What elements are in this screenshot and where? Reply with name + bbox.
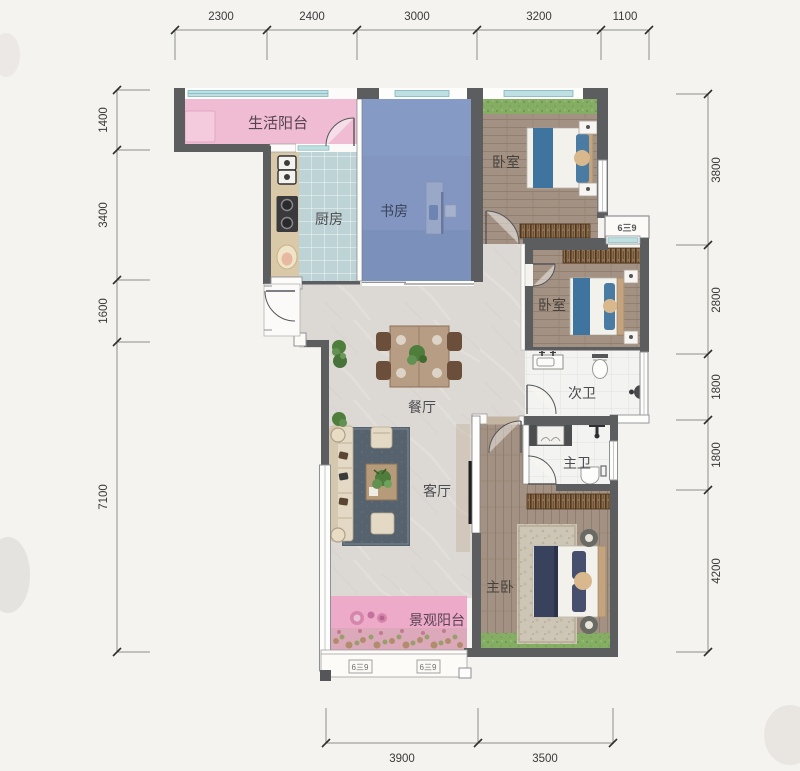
- svg-text:6三9: 6三9: [352, 663, 369, 672]
- svg-text:3400: 3400: [98, 202, 110, 228]
- svg-text:6三9: 6三9: [420, 663, 437, 672]
- svg-text:1800: 1800: [711, 442, 723, 468]
- svg-text:7100: 7100: [98, 484, 110, 510]
- svg-text:书房: 书房: [380, 203, 408, 219]
- svg-text:主卫: 主卫: [563, 455, 591, 471]
- svg-text:2400: 2400: [299, 11, 325, 23]
- svg-text:次卫: 次卫: [568, 385, 596, 401]
- svg-text:3900: 3900: [389, 753, 415, 765]
- svg-text:1100: 1100: [613, 11, 638, 23]
- svg-text:3500: 3500: [532, 753, 558, 765]
- svg-text:1800: 1800: [711, 374, 723, 400]
- svg-text:卧室: 卧室: [492, 154, 520, 170]
- svg-text:3800: 3800: [711, 157, 723, 183]
- svg-text:主卧: 主卧: [486, 579, 514, 595]
- svg-text:3200: 3200: [526, 11, 552, 23]
- svg-text:景观阳台: 景观阳台: [409, 612, 465, 628]
- svg-text:1600: 1600: [98, 298, 110, 324]
- svg-text:卧室: 卧室: [538, 297, 566, 313]
- svg-text:餐厅: 餐厅: [408, 399, 436, 415]
- svg-text:1400: 1400: [98, 107, 110, 133]
- svg-text:2800: 2800: [711, 287, 723, 313]
- svg-text:4200: 4200: [711, 558, 723, 584]
- svg-text:3000: 3000: [404, 11, 430, 23]
- svg-text:2300: 2300: [208, 11, 234, 23]
- svg-text:生活阳台: 生活阳台: [248, 115, 308, 132]
- svg-text:客厅: 客厅: [423, 483, 451, 499]
- svg-text:厨房: 厨房: [315, 211, 343, 227]
